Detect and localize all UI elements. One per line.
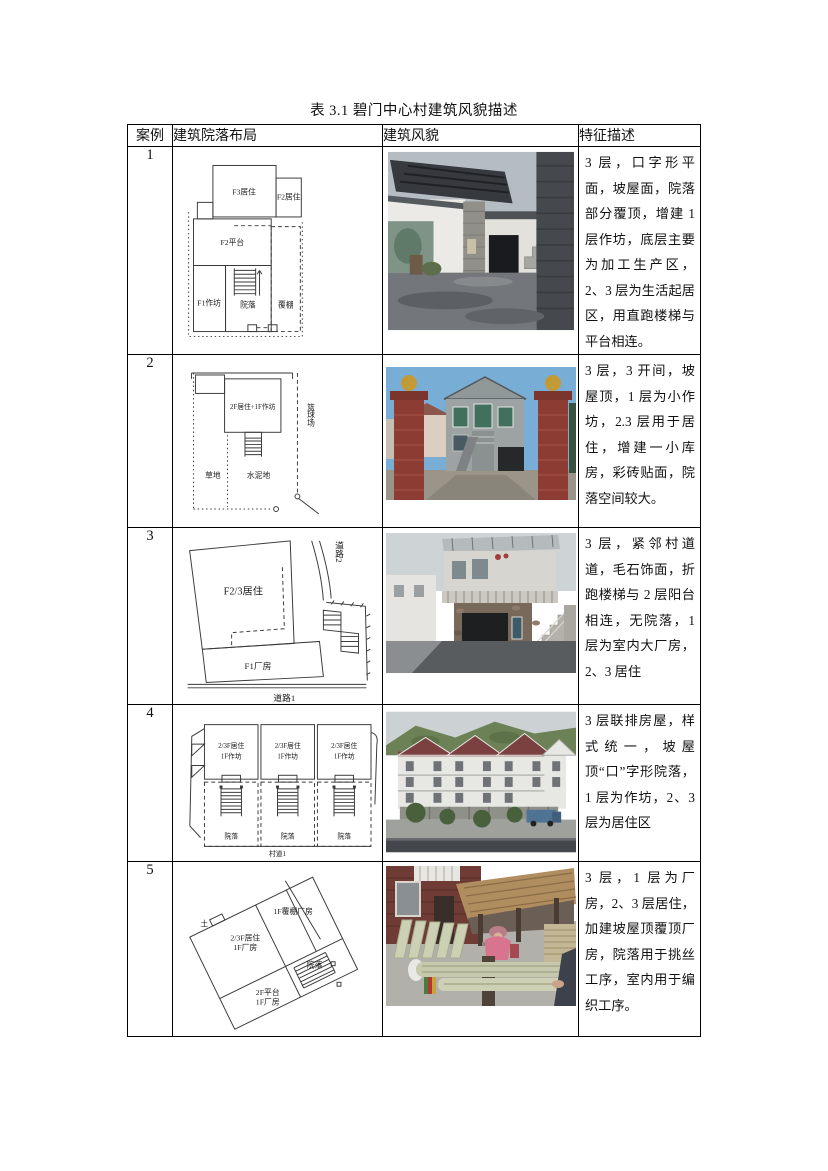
label-cement: 水泥地 bbox=[246, 470, 270, 480]
label-f2-living: F2居住 bbox=[276, 191, 300, 201]
table-row: 4 2/3F居住 1F作坊 院落 bbox=[128, 705, 701, 862]
table-row: 1 F3居住 F2居 bbox=[128, 147, 701, 355]
table-row: 2 2F居住+1F作坊 草地 水泥地 篮球场 bbox=[128, 355, 701, 528]
feature-description-4: 3 层联排房屋，样式统一，坡屋顶“口”字形院落，1 层为作坊，2、3 层为居住区 bbox=[579, 705, 700, 836]
document-page: 表 3.1 碧门中心村建筑风貌描述 案例 建筑院落布局 建筑风貌 特征描述 1 bbox=[0, 0, 828, 1171]
label-grass: 草地 bbox=[205, 470, 221, 480]
label-courtyard: 院落 bbox=[240, 299, 256, 309]
layout-diagram-1: F3居住 F2居住 F2平台 F1作坊 院落 覆棚 bbox=[176, 153, 380, 345]
header-row: 案例 建筑院落布局 建筑风貌 特征描述 bbox=[128, 125, 701, 147]
photo-stone-house-garage bbox=[386, 533, 576, 673]
building-style-table: 案例 建筑院落布局 建筑风貌 特征描述 1 bbox=[127, 124, 701, 1037]
label-living-factory: 1F厂房 bbox=[233, 942, 257, 952]
table-row: 5 1F覆棚厂房 2/3F居住 bbox=[128, 862, 701, 1037]
label-f2-platform: F2平台 bbox=[220, 237, 244, 247]
header-appearance: 建筑风貌 bbox=[383, 125, 579, 147]
feature-description-5: 3 层，1 层为厂房，2、3 层居住，加建坡屋顶覆顶厂房，院落用于挑丝工序，室内… bbox=[579, 862, 700, 1018]
label-living: F2/3居住 bbox=[224, 585, 263, 598]
photo-red-gate-house bbox=[386, 367, 576, 500]
table-row: 3 F2/3居住 F1厂房 道路1 道路2 bbox=[128, 528, 701, 705]
label-road2: 道路2 bbox=[334, 539, 344, 562]
label-platform: 2F平台 bbox=[256, 987, 280, 997]
label-f3-living: F3居住 bbox=[232, 187, 256, 197]
case-number-2: 2 bbox=[128, 355, 173, 528]
label-canopy-factory: 1F覆棚厂房 bbox=[273, 906, 313, 916]
header-features: 特征描述 bbox=[579, 125, 701, 147]
layout-diagram-2: 2F居住+1F作坊 草地 水泥地 篮球场 bbox=[176, 361, 380, 523]
label-living: 2/3F居住 bbox=[230, 932, 260, 942]
label-courtyard: 院落 bbox=[307, 960, 323, 970]
photo-row-houses bbox=[386, 711, 576, 853]
layout-diagram-4: 2/3F居住 1F作坊 院落 村道1 bbox=[175, 711, 380, 861]
case-number-5: 5 bbox=[128, 862, 173, 1037]
feature-description-3: 3 层，紧邻村道道，毛石饰面，折跑楼梯与 2 层阳台相连，无院落，1 层为室内大… bbox=[579, 528, 700, 684]
layout-diagram-3: F2/3居住 F1厂房 道路1 道路2 bbox=[175, 534, 380, 704]
header-case: 案例 bbox=[128, 125, 173, 147]
label-soil: 土 bbox=[200, 919, 208, 929]
case-number-1: 1 bbox=[128, 147, 173, 355]
photo-weaving-workshop bbox=[386, 866, 576, 1006]
layout-diagram-5: 1F覆棚厂房 2/3F居住 1F厂房 院落 2F平台 1F厂房 土 bbox=[175, 868, 380, 1036]
label-village-road: 村道1 bbox=[269, 849, 286, 858]
table-title: 表 3.1 碧门中心村建筑风貌描述 bbox=[0, 99, 828, 120]
label-basketball-court: 篮球场 bbox=[306, 402, 315, 428]
feature-description-2: 3 层，3 开间，坡屋顶，1 层为小作坊，2.3 层用于居住，增建一小库房，彩砖… bbox=[579, 355, 700, 511]
label-main-building: 2F居住+1F作坊 bbox=[230, 402, 276, 411]
label-f1-workshop: F1作坊 bbox=[197, 297, 221, 307]
case-number-4: 4 bbox=[128, 705, 173, 862]
label-platform-factory: 1F厂房 bbox=[256, 997, 280, 1007]
case-number-3: 3 bbox=[128, 528, 173, 705]
label-canopy: 覆棚 bbox=[278, 299, 294, 309]
label-road1: 道路1 bbox=[273, 692, 295, 703]
feature-description-1: 3 层，口字形平面，坡屋面，院落部分覆顶，增建 1 层作坊，底层主要为加工生产区… bbox=[579, 147, 700, 354]
photo-courtyard-gate bbox=[388, 151, 574, 331]
header-layout: 建筑院落布局 bbox=[173, 125, 383, 147]
label-factory: F1厂房 bbox=[245, 660, 272, 671]
